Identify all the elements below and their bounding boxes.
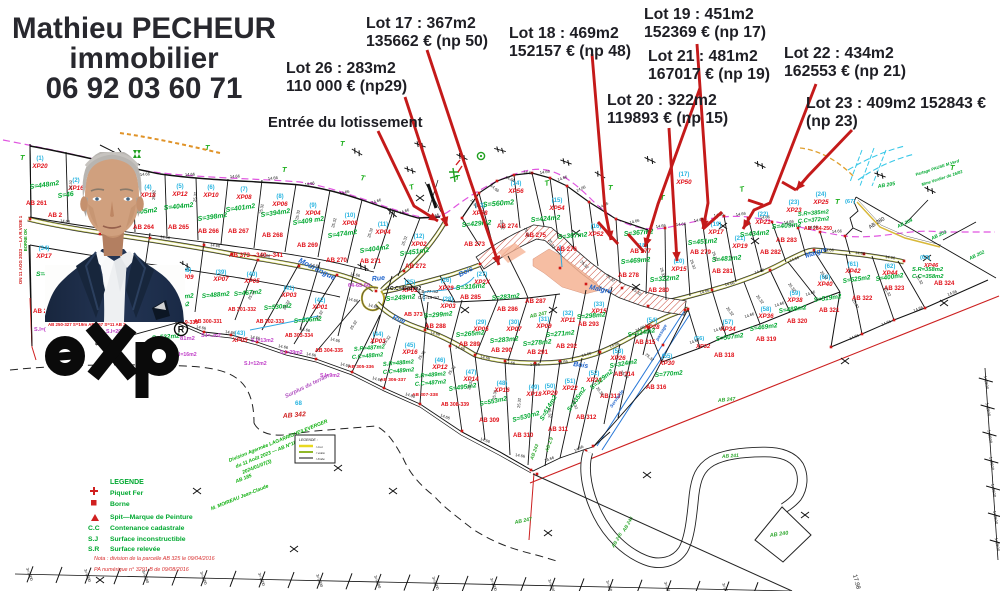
svg-text:14.66: 14.66 bbox=[185, 171, 196, 177]
svg-text:XP12: XP12 bbox=[431, 364, 448, 371]
svg-text:AB 241: AB 241 bbox=[721, 453, 740, 460]
svg-text:Surface relevée: Surface relevée bbox=[110, 546, 160, 553]
svg-text:S=530m2: S=530m2 bbox=[512, 410, 541, 424]
svg-text:LEGENDE :: LEGENDE : bbox=[299, 438, 318, 442]
svg-text:M. MOIREAU Jean-Claude: M. MOIREAU Jean-Claude bbox=[210, 483, 270, 512]
svg-text:25.32: 25.32 bbox=[755, 294, 765, 306]
svg-text:Spit—Marque de Peinture: Spit—Marque de Peinture bbox=[110, 514, 193, 521]
svg-text:17.98: 17.98 bbox=[851, 574, 861, 591]
svg-text:1=2600: 1=2600 bbox=[992, 510, 999, 525]
svg-text:AB 271: AB 271 bbox=[360, 258, 382, 265]
svg-text:AB 283: AB 283 bbox=[776, 237, 798, 244]
svg-text:14.66: 14.66 bbox=[340, 361, 352, 368]
svg-text:XP15: XP15 bbox=[670, 266, 687, 273]
svg-text:(19): (19) bbox=[711, 222, 722, 228]
svg-text:(17): (17) bbox=[679, 172, 690, 178]
svg-text:C.C=488m2: C.C=488m2 bbox=[352, 352, 385, 361]
svg-text:AB 272: AB 272 bbox=[405, 263, 427, 270]
svg-text:14.66: 14.66 bbox=[557, 359, 568, 365]
svg-text:XP05: XP05 bbox=[243, 278, 260, 285]
svg-text:14.66: 14.66 bbox=[824, 247, 835, 253]
svg-text:AB 204: AB 204 bbox=[895, 217, 913, 230]
svg-text:AB 342: AB 342 bbox=[282, 411, 307, 420]
svg-text:AB 250-327 S=19m AB 257 S=1: AB 250-327 S=19m AB 257 S=11 AB 2 bbox=[48, 322, 126, 327]
svg-text:AB 264: AB 264 bbox=[133, 224, 155, 231]
svg-text:XP29: XP29 bbox=[437, 285, 454, 292]
svg-text:(23): (23) bbox=[789, 200, 800, 206]
svg-text:14.66: 14.66 bbox=[849, 332, 861, 341]
svg-text:T: T bbox=[608, 183, 614, 192]
svg-text:XP17: XP17 bbox=[707, 229, 724, 236]
svg-text:25.32: 25.32 bbox=[447, 364, 457, 376]
svg-text:25.32: 25.32 bbox=[400, 234, 408, 246]
svg-text:S.R: S.R bbox=[88, 546, 99, 553]
svg-text:S=451m2: S=451m2 bbox=[688, 237, 718, 247]
svg-text:14.66: 14.66 bbox=[230, 173, 241, 179]
svg-text:XP42: XP42 bbox=[844, 268, 861, 275]
svg-text:AB 205: AB 205 bbox=[876, 181, 895, 190]
svg-text:C.C: C.C bbox=[88, 525, 100, 532]
svg-text:PA numérique n° 3291 B de 09/0: PA numérique n° 3291 B de 09/08/2016 bbox=[94, 567, 189, 573]
svg-text:XP09: XP09 bbox=[535, 323, 552, 330]
svg-text:14.66: 14.66 bbox=[539, 169, 550, 175]
svg-text:XP03: XP03 bbox=[439, 303, 456, 310]
svg-text:XP50: XP50 bbox=[675, 179, 692, 186]
svg-text:AB 273: AB 273 bbox=[464, 241, 486, 248]
svg-text:14.66: 14.66 bbox=[544, 455, 556, 463]
svg-text:C.C=487m2: C.C=487m2 bbox=[415, 379, 448, 388]
svg-text:14.66: 14.66 bbox=[515, 452, 526, 459]
svg-text:XP32: XP32 bbox=[695, 344, 711, 350]
svg-text:S=404m2: S=404m2 bbox=[359, 244, 390, 255]
svg-text:S=770m2: S=770m2 bbox=[655, 370, 684, 379]
svg-text:14.66: 14.66 bbox=[505, 360, 516, 366]
svg-text:XP06: XP06 bbox=[271, 201, 288, 208]
svg-text:AB 292: AB 292 bbox=[556, 343, 578, 350]
svg-text:(67): (67) bbox=[845, 199, 855, 205]
svg-text:T: T bbox=[20, 153, 26, 162]
svg-text:Contenance cadastrale: Contenance cadastrale bbox=[110, 525, 185, 532]
svg-text:(10): (10) bbox=[345, 213, 356, 219]
svg-text:1=2600: 1=2600 bbox=[988, 456, 995, 471]
svg-text:AB 268: AB 268 bbox=[262, 232, 284, 239]
svg-text:S.I=12m2: S.I=12m2 bbox=[244, 361, 267, 367]
svg-text:XP10: XP10 bbox=[202, 192, 219, 199]
svg-text:AB 281: AB 281 bbox=[712, 268, 734, 275]
svg-text:XP11: XP11 bbox=[560, 317, 576, 324]
svg-text:14.66: 14.66 bbox=[530, 362, 541, 367]
svg-text:S=394m2: S=394m2 bbox=[260, 208, 291, 219]
svg-text:XP08: XP08 bbox=[235, 194, 252, 201]
svg-text:25.32: 25.32 bbox=[151, 189, 156, 200]
svg-text:AB 312: AB 312 bbox=[576, 415, 597, 421]
svg-text:T: T bbox=[340, 139, 346, 148]
svg-text:Nota : division de la parcelle: Nota : division de la parcelle AB 325 le… bbox=[94, 556, 215, 562]
svg-text:S=249m2: S=249m2 bbox=[386, 293, 416, 303]
svg-text:XP20: XP20 bbox=[31, 163, 48, 170]
svg-text:14.66: 14.66 bbox=[430, 330, 441, 337]
svg-text:1=2600: 1=2600 bbox=[986, 429, 993, 444]
svg-text:S=488m2: S=488m2 bbox=[202, 291, 231, 300]
svg-text:Borne: Borne bbox=[110, 501, 130, 508]
svg-text:S.I=..m2: S.I=..m2 bbox=[201, 333, 221, 339]
svg-text:14.66: 14.66 bbox=[808, 224, 819, 230]
svg-text:25.32: 25.32 bbox=[725, 306, 735, 318]
svg-text:S=469m2: S=469m2 bbox=[621, 256, 651, 266]
svg-text:S=525m2: S=525m2 bbox=[842, 274, 871, 285]
svg-text:LEGENDE: LEGENDE bbox=[110, 479, 144, 486]
svg-text:S=560m2: S=560m2 bbox=[482, 197, 514, 209]
svg-text:S.I=(: S.I=( bbox=[34, 327, 46, 333]
svg-text:XP22: XP22 bbox=[561, 385, 578, 392]
svg-text:AB 306-337: AB 306-337 bbox=[380, 377, 406, 383]
svg-text:XP16: XP16 bbox=[401, 349, 418, 356]
svg-text:S=283m2: S=283m2 bbox=[490, 335, 520, 345]
svg-text:C.C=19 m2: C.C=19 m2 bbox=[418, 295, 440, 300]
svg-text:S=507m2: S=507m2 bbox=[715, 332, 744, 343]
svg-text:XP25: XP25 bbox=[812, 199, 829, 206]
svg-text:AB 265: AB 265 bbox=[168, 224, 190, 231]
svg-text:T: T bbox=[835, 197, 841, 206]
svg-text:S=46: S=46 bbox=[57, 191, 74, 200]
svg-text:C.C=489m2: C.C=489m2 bbox=[383, 367, 416, 376]
svg-text:AB 310: AB 310 bbox=[513, 433, 534, 439]
svg-text:/ mur: / mur bbox=[315, 445, 324, 449]
svg-text:3=2500: 3=2500 bbox=[663, 581, 673, 591]
svg-text:XP20: XP20 bbox=[541, 390, 558, 397]
svg-text:/ voirie: / voirie bbox=[315, 451, 325, 455]
svg-text:S=495m2: S=495m2 bbox=[448, 382, 477, 393]
svg-text:AB 280: AB 280 bbox=[648, 287, 670, 294]
svg-text:25.32: 25.32 bbox=[349, 319, 359, 331]
svg-text:(6): (6) bbox=[207, 185, 214, 191]
svg-text:68: 68 bbox=[295, 400, 302, 407]
svg-text:14.66: 14.66 bbox=[480, 436, 492, 444]
svg-text:AB 293: AB 293 bbox=[578, 321, 600, 328]
svg-text:(20): (20) bbox=[674, 259, 685, 265]
svg-text:XP52: XP52 bbox=[587, 231, 604, 238]
svg-text:S=298m2: S=298m2 bbox=[577, 311, 607, 321]
svg-text:3=2500: 3=2500 bbox=[605, 580, 615, 591]
svg-text:25.32: 25.32 bbox=[192, 191, 198, 202]
svg-text:Surface inconstructible: Surface inconstructible bbox=[110, 536, 186, 543]
svg-text:XP08: XP08 bbox=[341, 220, 358, 227]
svg-text:AB 311: AB 311 bbox=[548, 427, 569, 433]
svg-text:XP21: XP21 bbox=[754, 219, 771, 226]
svg-text:AB 270: AB 270 bbox=[326, 257, 348, 264]
svg-text:AB 243: AB 243 bbox=[529, 443, 541, 462]
svg-text:T: T bbox=[408, 182, 416, 192]
svg-text:T: T bbox=[360, 173, 367, 183]
svg-text:S=434m2: S=434m2 bbox=[740, 229, 770, 239]
svg-text:S=265m2: S=265m2 bbox=[456, 329, 486, 339]
svg-text:14.66: 14.66 bbox=[330, 336, 342, 343]
svg-text:AB 303-334: AB 303-334 bbox=[285, 333, 313, 339]
svg-text:XP05: XP05 bbox=[231, 337, 248, 344]
svg-text:Bois: Bois bbox=[573, 361, 589, 370]
svg-text:(34): (34) bbox=[39, 246, 50, 252]
svg-text:S=404m2: S=404m2 bbox=[163, 202, 193, 212]
svg-text:14.66: 14.66 bbox=[557, 174, 569, 182]
svg-text:Bois: Bois bbox=[458, 265, 475, 278]
svg-text:S=367m2: S=367m2 bbox=[558, 231, 588, 241]
svg-text:AB 267: AB 267 bbox=[228, 228, 250, 235]
svg-text:S=283m2: S=283m2 bbox=[492, 293, 521, 302]
svg-text:AB 2.9: AB 2.9 bbox=[544, 436, 555, 453]
svg-text:(15): (15) bbox=[552, 198, 563, 204]
svg-text:AB 288: AB 288 bbox=[425, 323, 447, 330]
svg-text:XP04: XP04 bbox=[374, 229, 391, 236]
svg-text:14.66: 14.66 bbox=[523, 169, 534, 176]
svg-text:14.66: 14.66 bbox=[676, 221, 687, 227]
svg-text:S=451m2: S=451m2 bbox=[399, 247, 430, 258]
svg-text:14.66: 14.66 bbox=[832, 228, 843, 234]
svg-text:25.32: 25.32 bbox=[644, 352, 655, 363]
svg-text:(9): (9) bbox=[309, 203, 316, 209]
svg-text:(24): (24) bbox=[816, 192, 827, 198]
svg-text:AB 304-335: AB 304-335 bbox=[315, 348, 343, 354]
svg-text:14.66: 14.66 bbox=[913, 304, 925, 313]
svg-text:25.32: 25.32 bbox=[516, 397, 522, 408]
svg-text:S.R=358m2: S.R=358m2 bbox=[912, 267, 944, 273]
svg-text:AB 318: AB 318 bbox=[714, 353, 735, 359]
svg-text:AB 309: AB 309 bbox=[479, 418, 500, 424]
svg-text:AB 320: AB 320 bbox=[787, 319, 808, 325]
svg-text:14.66: 14.66 bbox=[575, 184, 587, 193]
svg-text:T: T bbox=[739, 184, 746, 194]
svg-text:XP12: XP12 bbox=[171, 191, 188, 198]
svg-text:14.66: 14.66 bbox=[735, 211, 746, 217]
svg-text:14.66: 14.66 bbox=[489, 183, 500, 194]
svg-text:14.66: 14.66 bbox=[440, 412, 452, 421]
svg-text:AB 246: AB 246 bbox=[621, 516, 635, 534]
svg-text:14.66: 14.66 bbox=[348, 296, 360, 303]
svg-text:25.32: 25.32 bbox=[547, 408, 553, 419]
svg-text:25.32: 25.32 bbox=[689, 259, 697, 271]
svg-text:S=316m2: S=316m2 bbox=[456, 282, 486, 292]
svg-text:14.66: 14.66 bbox=[60, 218, 71, 224]
svg-text:AB 285: AB 285 bbox=[460, 294, 482, 301]
svg-text:(1): (1) bbox=[36, 156, 43, 162]
svg-text:C.C=4581 m2: C.C=4581 m2 bbox=[390, 286, 421, 292]
svg-text:S=448m2: S=448m2 bbox=[29, 180, 60, 191]
svg-text:AB 261: AB 261 bbox=[26, 200, 48, 207]
svg-text:14.66: 14.66 bbox=[210, 242, 221, 248]
svg-text:64-65-66: 64-65-66 bbox=[348, 283, 370, 289]
svg-text:XP56: XP56 bbox=[507, 188, 524, 195]
svg-text:XP40: XP40 bbox=[816, 281, 833, 288]
svg-text:AB 316: AB 316 bbox=[646, 385, 667, 391]
svg-text:1=2600: 1=2600 bbox=[994, 537, 1000, 552]
svg-text:(5): (5) bbox=[176, 184, 183, 190]
svg-text:AB 373—340—341: AB 373—340—341 bbox=[229, 252, 284, 259]
svg-text:AB 269: AB 269 bbox=[297, 242, 319, 249]
svg-text:(63): (63) bbox=[920, 255, 930, 261]
svg-text:Rue: Rue bbox=[372, 275, 386, 283]
svg-text:14.66: 14.66 bbox=[760, 214, 771, 220]
svg-text:S=278m2: S=278m2 bbox=[523, 338, 553, 348]
svg-text:S.J: S.J bbox=[88, 536, 98, 543]
svg-text:3=2500: 3=2500 bbox=[547, 578, 557, 591]
svg-text:AB 290: AB 290 bbox=[491, 347, 513, 354]
svg-text:14.66: 14.66 bbox=[744, 311, 756, 319]
svg-text:XP38: XP38 bbox=[786, 297, 803, 304]
svg-text:AB 308-339: AB 308-339 bbox=[441, 402, 469, 408]
svg-text:AB 305-336: AB 305-336 bbox=[348, 364, 374, 370]
svg-text:AB 247: AB 247 bbox=[717, 396, 737, 404]
svg-text:AB 307-338: AB 307-338 bbox=[412, 392, 438, 398]
svg-text:S=469m2: S=469m2 bbox=[749, 322, 778, 333]
svg-text:AB 266: AB 266 bbox=[198, 228, 220, 235]
svg-text:AB 286: AB 286 bbox=[497, 306, 519, 313]
svg-text:25.32: 25.32 bbox=[68, 179, 73, 190]
svg-text:14.66: 14.66 bbox=[480, 354, 491, 361]
svg-text:Piquet Fer: Piquet Fer bbox=[110, 490, 144, 497]
svg-text:S=401m2: S=401m2 bbox=[225, 203, 256, 214]
svg-text:XP03: XP03 bbox=[280, 292, 297, 299]
svg-text:XP19: XP19 bbox=[731, 243, 748, 250]
svg-text:T: T bbox=[455, 173, 461, 182]
svg-text:AB 287: AB 287 bbox=[525, 298, 547, 305]
svg-text:(27): (27) bbox=[477, 272, 488, 278]
svg-text:14.66: 14.66 bbox=[855, 250, 866, 256]
svg-text:XP17: XP17 bbox=[35, 253, 52, 260]
svg-text:(12): (12) bbox=[414, 234, 425, 240]
svg-text:AB 291: AB 291 bbox=[527, 349, 549, 356]
svg-text:AB 202: AB 202 bbox=[967, 249, 985, 262]
svg-text:S=299m2: S=299m2 bbox=[424, 310, 454, 320]
svg-text:(8): (8) bbox=[276, 194, 283, 200]
svg-text:25.32: 25.32 bbox=[366, 227, 374, 239]
svg-text:AB 278: AB 278 bbox=[618, 272, 640, 279]
svg-text:(2): (2) bbox=[72, 178, 79, 184]
svg-text:S=271m2: S=271m2 bbox=[546, 329, 576, 339]
svg-text:81m2: 81m2 bbox=[180, 336, 195, 342]
svg-text:25.32: 25.32 bbox=[330, 217, 338, 229]
svg-text:S=488m2: S=488m2 bbox=[778, 304, 807, 315]
svg-text:BORNE OK: BORNE OK bbox=[23, 229, 28, 252]
svg-text:1=2600: 1=2600 bbox=[983, 375, 990, 390]
svg-text:1=2600: 1=2600 bbox=[985, 402, 992, 417]
svg-text:AB 282: AB 282 bbox=[760, 249, 782, 256]
svg-text:T: T bbox=[282, 165, 288, 174]
svg-text:(11): (11) bbox=[378, 222, 388, 228]
svg-text:XP30: XP30 bbox=[658, 360, 675, 367]
svg-text:XP07: XP07 bbox=[505, 326, 522, 333]
svg-text:(26): (26) bbox=[441, 278, 452, 284]
svg-text:AB 324: AB 324 bbox=[934, 281, 955, 287]
svg-text:AB 302-333: AB 302-333 bbox=[256, 319, 284, 325]
svg-text:14.66: 14.66 bbox=[724, 280, 736, 287]
svg-text:XP18: XP18 bbox=[525, 391, 542, 398]
svg-text:AB 373: AB 373 bbox=[404, 312, 423, 318]
svg-text:AB 279: AB 279 bbox=[690, 249, 712, 256]
svg-text:AB 319: AB 319 bbox=[756, 337, 777, 343]
svg-text:/ limite: / limite bbox=[315, 457, 325, 461]
svg-text:R: R bbox=[178, 325, 185, 335]
svg-text:S=400m2: S=400m2 bbox=[875, 272, 904, 283]
svg-text:AB 301-332: AB 301-332 bbox=[228, 307, 256, 313]
svg-text:25.32: 25.32 bbox=[417, 349, 427, 361]
svg-text:AB 321: AB 321 bbox=[819, 308, 840, 314]
svg-text:AB 315: AB 315 bbox=[635, 340, 656, 346]
svg-text:XP36: XP36 bbox=[757, 313, 774, 320]
svg-text:Surplus du terrain: Surplus du terrain bbox=[284, 373, 330, 400]
svg-text:(7): (7) bbox=[240, 187, 247, 193]
svg-text:AB 276: AB 276 bbox=[556, 246, 578, 253]
svg-text:14.66: 14.66 bbox=[196, 324, 207, 331]
svg-text:14.66: 14.66 bbox=[304, 180, 315, 187]
svg-text:S.I=29m2: S.I=29m2 bbox=[280, 350, 303, 356]
svg-text:XP07: XP07 bbox=[212, 276, 229, 283]
svg-text:XP54: XP54 bbox=[548, 205, 565, 212]
svg-text:1=2600: 1=2600 bbox=[990, 483, 997, 498]
svg-text:5.B=77 m2: 5.B=77 m2 bbox=[418, 289, 439, 294]
svg-text:14.66: 14.66 bbox=[629, 217, 641, 225]
svg-text:14.66: 14.66 bbox=[881, 318, 893, 327]
svg-text:14.66: 14.66 bbox=[140, 171, 151, 177]
